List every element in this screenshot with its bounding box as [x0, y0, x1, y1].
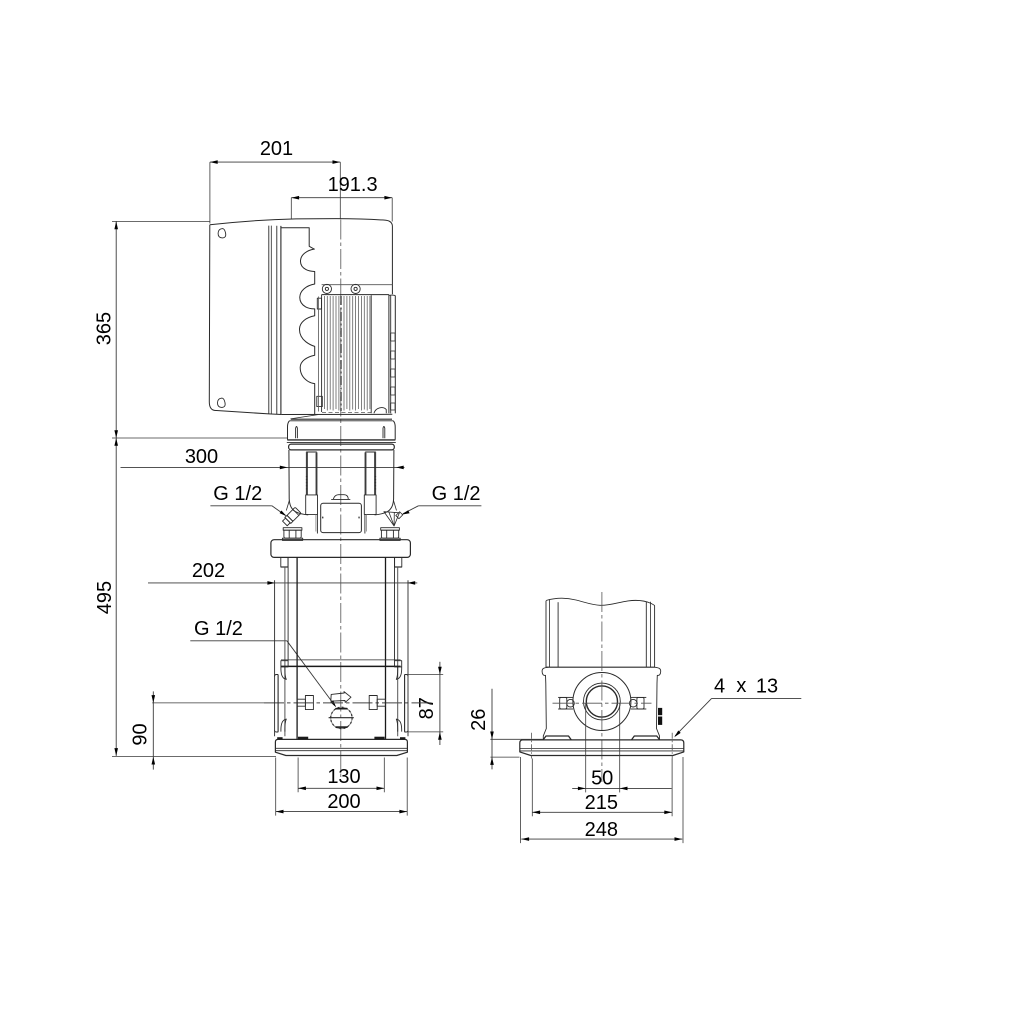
svg-text:248: 248 [585, 819, 618, 841]
svg-text:x: x [736, 675, 746, 697]
svg-text:201: 201 [260, 138, 293, 160]
svg-text:300: 300 [185, 446, 218, 468]
svg-text:215: 215 [585, 792, 618, 814]
svg-text:495: 495 [94, 581, 116, 614]
svg-text:4: 4 [714, 675, 725, 697]
svg-text:G 1/2: G 1/2 [194, 618, 243, 640]
svg-text:200: 200 [327, 791, 360, 813]
svg-text:26: 26 [468, 709, 490, 731]
svg-text:191.3: 191.3 [328, 174, 378, 196]
svg-text:G 1/2: G 1/2 [213, 483, 262, 505]
svg-text:13: 13 [756, 675, 778, 697]
svg-text:G 1/2: G 1/2 [432, 483, 481, 505]
svg-text:365: 365 [94, 312, 116, 345]
svg-text:202: 202 [192, 560, 225, 582]
svg-text:50: 50 [591, 767, 613, 789]
svg-text:87: 87 [416, 697, 438, 719]
svg-text:130: 130 [327, 766, 360, 788]
svg-text:90: 90 [130, 723, 152, 745]
